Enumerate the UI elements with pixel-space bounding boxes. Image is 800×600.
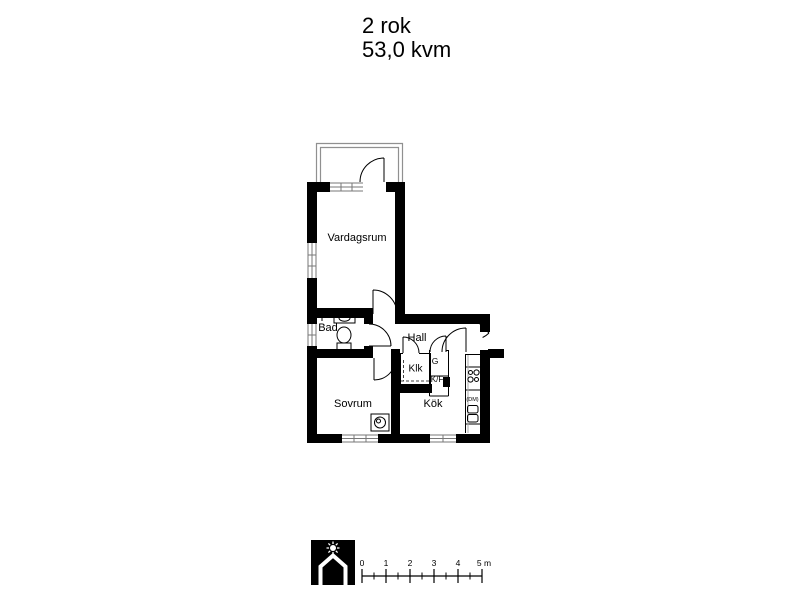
company-logo	[311, 540, 355, 585]
label-hall: Hall	[408, 332, 427, 344]
bedroom-window-icon	[342, 434, 378, 443]
kitchen-window-icon	[430, 434, 456, 443]
kitchen-sink-icon	[468, 406, 479, 423]
washing-machine-icon	[371, 414, 389, 431]
label-klk: Klk	[409, 364, 424, 375]
balcony-outline	[317, 144, 403, 189]
balcony-door-swing-icon	[360, 158, 384, 182]
scale-tick-label-3: 3	[432, 558, 437, 568]
scale-bar-labels: 0 1 2 3 4 5 m	[360, 558, 491, 568]
bathroom-window-icon	[307, 324, 317, 346]
scale-tick-label-2: 2	[408, 558, 413, 568]
livingroom-door-swing-icon	[373, 290, 397, 314]
scale-bar: 0 1 2 3 4 5 m	[360, 558, 491, 583]
scale-tick-label-0: 0	[360, 558, 365, 568]
label-garderob: G	[432, 356, 439, 366]
scale-bar-ticks	[362, 569, 482, 583]
toilet-icon	[337, 327, 351, 350]
stove-burners-icon	[468, 370, 479, 382]
label-vardagsrum: Vardagsrum	[327, 232, 386, 244]
scale-tick-label-4: 4	[456, 558, 461, 568]
label-sovrum: Sovrum	[334, 398, 372, 410]
bathroom-door-swing-icon	[369, 324, 391, 346]
sun-icon	[327, 542, 340, 555]
label-bad: Bad	[318, 322, 338, 334]
balcony-wall-window-icon	[330, 182, 386, 192]
label-kok: Kök	[424, 398, 443, 410]
livingroom-window-icon	[307, 243, 317, 278]
label-kyl-frys: K/F	[431, 375, 444, 384]
scale-tick-label-1: 1	[384, 558, 389, 568]
floor-plan-drawing: Vardagsrum Bad Hall Sovrum Kök Klk G K/F…	[0, 0, 800, 600]
scale-tick-label-5: 5 m	[477, 558, 491, 568]
label-diskmaskin: (DM)	[466, 397, 478, 403]
floorplan-page: 2 rok 53,0 kvm	[0, 0, 800, 600]
